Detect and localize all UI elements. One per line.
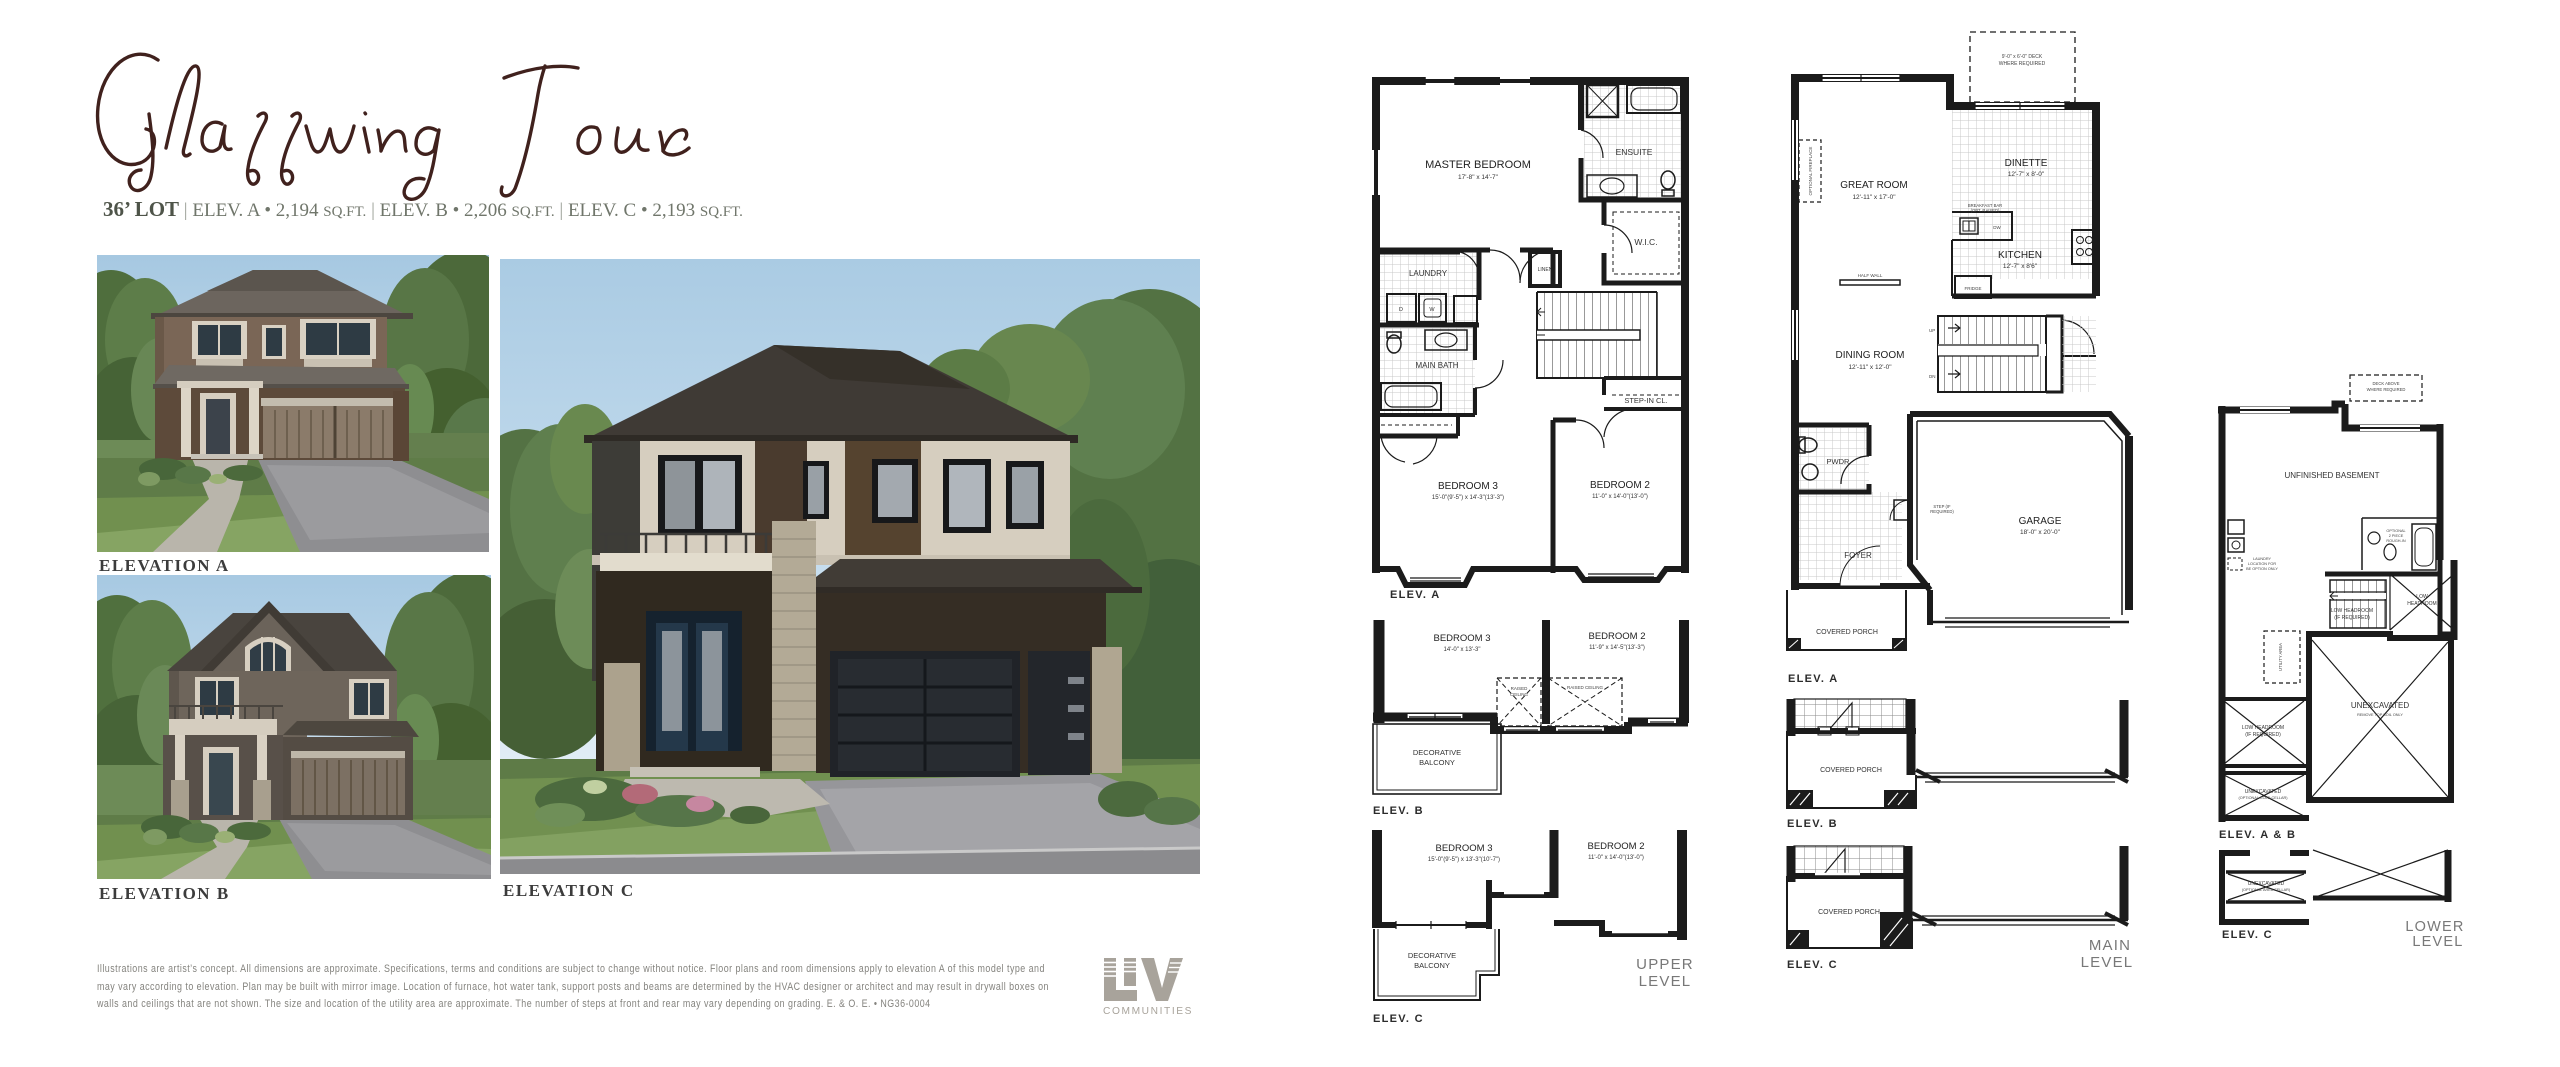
svg-text:ELEV. A: ELEV. A: [1788, 673, 1838, 685]
svg-text:12'-11" x 12'-0": 12'-11" x 12'-0": [1848, 364, 1892, 371]
svg-text:W.I.C.: W.I.C.: [1634, 237, 1657, 247]
svg-text:ELEV. C: ELEV. C: [1787, 959, 1838, 971]
svg-text:DECORATIVE: DECORATIVE: [1408, 951, 1456, 960]
svg-text:UNEXCAVATED: UNEXCAVATED: [2248, 881, 2285, 887]
svg-text:LOCATION FOR: LOCATION FOR: [2248, 562, 2276, 566]
svg-text:BEDROOM 3: BEDROOM 3: [1438, 481, 1498, 492]
svg-text:ELEV. C: ELEV. C: [1373, 1013, 1424, 1025]
svg-text:COVERED PORCH: COVERED PORCH: [1816, 629, 1878, 636]
svg-text:RAISED: RAISED: [1511, 686, 1529, 691]
svg-text:BEDROOM 2: BEDROOM 2: [1588, 631, 1645, 642]
svg-text:STEP-IN CL.: STEP-IN CL.: [1624, 396, 1667, 405]
svg-text:MAIN BATH: MAIN BATH: [1416, 361, 1459, 370]
svg-text:COVERED PORCH: COVERED PORCH: [1820, 767, 1882, 774]
svg-text:11'-0" x 14'-0"(13'-0"): 11'-0" x 14'-0"(13'-0"): [1592, 494, 1648, 500]
svg-text:LOW HEADROOM: LOW HEADROOM: [2242, 725, 2284, 731]
svg-text:(IF REQUIRED): (IF REQUIRED): [2334, 615, 2370, 621]
svg-text:UPPER: UPPER: [1636, 956, 1694, 973]
svg-text:ELEV. A: ELEV. A: [1390, 589, 1440, 601]
svg-text:LEVEL: LEVEL: [1639, 973, 1692, 990]
svg-text:COVERED PORCH: COVERED PORCH: [1818, 909, 1880, 916]
svg-text:UTILITY AREA: UTILITY AREA: [2278, 643, 2283, 671]
svg-text:2 PIECE: 2 PIECE: [2389, 534, 2404, 538]
svg-text:RAISED CEILING: RAISED CEILING: [1567, 685, 1604, 690]
svg-text:LAUNDRY: LAUNDRY: [2253, 557, 2272, 561]
svg-text:BALCONY: BALCONY: [1414, 961, 1450, 970]
svg-text:BEDROOM 2: BEDROOM 2: [1590, 480, 1650, 491]
svg-text:ROUGH-IN: ROUGH-IN: [2386, 539, 2405, 543]
svg-text:14'-0" x 13'-3": 14'-0" x 13'-3": [1444, 647, 1481, 653]
svg-text:(IF REQUIRED): (IF REQUIRED): [2245, 732, 2281, 738]
svg-text:DINETTE: DINETTE: [2005, 158, 2048, 169]
svg-text:REQUIRED): REQUIRED): [1930, 509, 1954, 514]
svg-text:UNFINISHED BASEMENT: UNFINISHED BASEMENT: [2284, 471, 2379, 480]
svg-text:UNEXCAVATED: UNEXCAVATED: [2245, 789, 2282, 795]
svg-text:LOW HEADROOM: LOW HEADROOM: [2331, 608, 2373, 614]
svg-text:UP: UP: [1929, 328, 1935, 333]
svg-text:MAIN: MAIN: [2089, 937, 2131, 954]
svg-text:(OPTIONAL COLD CELLAR): (OPTIONAL COLD CELLAR): [2238, 796, 2288, 800]
svg-text:FRIDGE: FRIDGE: [1964, 286, 1981, 291]
svg-text:WHERE REQUIRED: WHERE REQUIRED: [1999, 61, 2046, 67]
svg-text:BALCONY: BALCONY: [1419, 758, 1455, 767]
svg-text:LEVEL: LEVEL: [2081, 954, 2134, 971]
svg-text:DINING ROOM: DINING ROOM: [1836, 350, 1905, 361]
svg-text:(OPTIONAL AREA CELLAR): (OPTIONAL AREA CELLAR): [2242, 888, 2291, 892]
svg-text:9'-0" x 6'-0" DECK: 9'-0" x 6'-0" DECK: [2002, 54, 2043, 60]
svg-text:DECORATIVE: DECORATIVE: [1413, 748, 1461, 757]
svg-text:BEDROOM 3: BEDROOM 3: [1433, 633, 1490, 644]
svg-text:HALF WALL: HALF WALL: [1858, 273, 1883, 278]
svg-text:ELEV. B: ELEV. B: [1373, 805, 1424, 817]
svg-text:OPTIONAL: OPTIONAL: [2386, 529, 2405, 533]
svg-text:GARAGE: GARAGE: [2019, 516, 2062, 527]
svg-text:LOW: LOW: [2416, 594, 2428, 600]
svg-text:18'-0" x 20'-0": 18'-0" x 20'-0": [2020, 529, 2061, 536]
svg-text:W: W: [1429, 307, 1435, 313]
svg-text:ELEV. B: ELEV. B: [1787, 818, 1838, 830]
svg-text:LEVEL: LEVEL: [2412, 934, 2463, 950]
svg-text:11'-9" x 14'-5"(13'-3"): 11'-9" x 14'-5"(13'-3"): [1589, 645, 1645, 651]
svg-text:D: D: [1399, 307, 1403, 313]
svg-text:ELEV. C: ELEV. C: [2222, 929, 2273, 941]
svg-text:MASTER BEDROOM: MASTER BEDROOM: [1425, 159, 1531, 171]
svg-text:UNEXCAVATED: UNEXCAVATED: [2351, 701, 2409, 710]
svg-text:KITCHEN: KITCHEN: [1998, 250, 2042, 261]
svg-text:(OPT. RAISED): (OPT. RAISED): [1971, 208, 2000, 213]
svg-text:CEILING: CEILING: [1510, 692, 1529, 697]
svg-text:12'-11" x 17'-0": 12'-11" x 17'-0": [1852, 194, 1896, 201]
svg-text:LINEN: LINEN: [1538, 267, 1553, 273]
svg-text:LAUNDRY: LAUNDRY: [1409, 269, 1448, 278]
svg-text:HEADROOM: HEADROOM: [2407, 601, 2436, 607]
svg-text:DW: DW: [1993, 225, 2001, 230]
svg-text:BEDROOM 3: BEDROOM 3: [1435, 843, 1492, 854]
svg-text:WHERE REQUIRED: WHERE REQUIRED: [2367, 387, 2406, 392]
svg-text:DN: DN: [1929, 374, 1936, 379]
svg-text:LOWER: LOWER: [2405, 919, 2464, 935]
svg-text:BE OPTION ONLY: BE OPTION ONLY: [2246, 567, 2278, 571]
svg-text:GREAT ROOM: GREAT ROOM: [1840, 180, 1907, 191]
svg-text:15'-0"(9'-5") x 14'-3"(13'-3"): 15'-0"(9'-5") x 14'-3"(13'-3"): [1432, 495, 1504, 501]
svg-text:12'-7" x 8'-0": 12'-7" x 8'-0": [2008, 171, 2045, 178]
svg-text:COMMUNITIES: COMMUNITIES: [1103, 1006, 1193, 1017]
svg-text:BEDROOM 2: BEDROOM 2: [1587, 841, 1644, 852]
svg-text:17'-8" x 14'-7": 17'-8" x 14'-7": [1458, 174, 1499, 181]
svg-text:11'-0" x 14'-0"(13'-0"): 11'-0" x 14'-0"(13'-0"): [1588, 855, 1644, 861]
svg-text:REMOVE TOP SOIL ONLY: REMOVE TOP SOIL ONLY: [2357, 713, 2403, 717]
svg-text:12'-7" x 8'6": 12'-7" x 8'6": [2003, 263, 2038, 270]
svg-text:ELEV. A & B: ELEV. A & B: [2219, 829, 2296, 841]
svg-text:ENSUITE: ENSUITE: [1616, 147, 1653, 157]
svg-text:PWDR: PWDR: [1827, 457, 1850, 466]
svg-text:DECK ABOVE: DECK ABOVE: [2373, 381, 2400, 386]
svg-text:OPTIONAL FIREPLACE: OPTIONAL FIREPLACE: [1808, 147, 1813, 196]
svg-text:15'-0"(9'-5") x 13'-3"(10'-7"): 15'-0"(9'-5") x 13'-3"(10'-7"): [1428, 857, 1500, 863]
